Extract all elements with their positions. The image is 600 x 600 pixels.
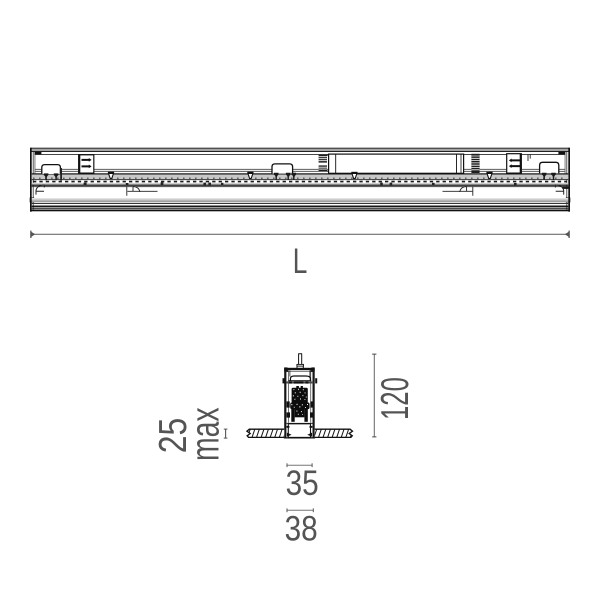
svg-text:120: 120 (374, 377, 418, 420)
svg-text:max: max (184, 407, 228, 461)
svg-text:35: 35 (286, 464, 319, 503)
svg-text:L: L (293, 241, 308, 281)
svg-text:38: 38 (285, 509, 318, 548)
